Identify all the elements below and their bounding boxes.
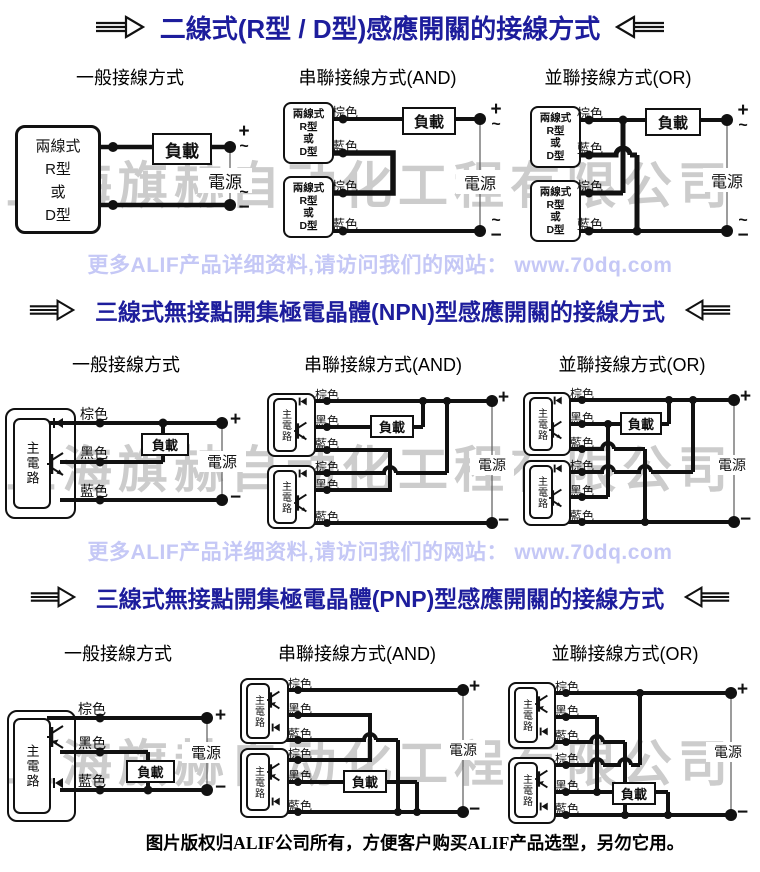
double-arrow-right-icon [23,298,81,322]
wire-label-blue: 藍色 [288,797,312,814]
minus-symbol: − [469,802,480,818]
section1-title: 二線式(R型 / D型)感應開關的接線方式 [160,9,601,46]
wire-label-brown: 棕色 [288,675,312,692]
sensor-box-line: D型 [532,150,579,163]
wire-label-blue: 藍色 [80,481,108,501]
wire-label-blue: 藍色 [555,800,579,817]
wire-label-blue: 藍色 [288,725,312,742]
load-box: 負載 [141,433,189,456]
terminal-minus: − [737,805,748,821]
wire-label-brown: 棕色 [570,457,594,474]
terminal-plus-ac: + ~ [234,124,254,154]
diode-icon [551,395,563,406]
sensor-box-line: D型 [532,224,579,237]
wire-label-blue: 藍色 [570,434,594,451]
terminal-plus-ac: + ~ [733,103,753,133]
terminal-minus: − [215,780,226,796]
sensor-box-line: 或 [285,207,332,220]
wire-label-black: 黑色 [288,700,312,717]
minus-symbol: − [486,228,506,244]
sensor-box: 兩線式 R型 或 D型 [530,180,581,242]
double-arrow-left-icon [678,585,736,609]
minus-symbol: − [737,805,748,821]
wire-label-blue: 藍色 [332,136,358,155]
wire-label-blue: 藍色 [315,435,339,452]
wire-label-blue: 藍色 [555,727,579,744]
load-box: 負載 [343,770,387,793]
wire-label-brown: 棕色 [332,102,358,121]
section2-title: 三線式無接點開集極電晶體(NPN)型感應開關的接線方式 [95,293,665,327]
wire-label-black: 黑色 [315,476,339,493]
section1-title-row: 二線式(R型 / D型)感應開關的接線方式 [0,8,760,46]
sensor-box-line: 或 [18,181,98,204]
pnp-transistor-icon [535,694,549,714]
wire-label-black: 黑色 [555,702,579,719]
load-box: 負載 [612,782,656,805]
s2-header-parallel: 並聯接線方式(OR) [542,351,722,377]
sensor-box-line: 或 [532,137,579,150]
wire-label-black: 黑色 [570,409,594,426]
wire-label-brown: 棕色 [288,745,312,762]
plus-symbol: + [737,682,748,698]
sensor-box-line: 兩線式 [285,108,332,121]
wire-label-blue: 藍色 [577,214,603,233]
load-box: 負載 [620,412,662,435]
plus-symbol: + [215,708,226,724]
main-circuit-label: 主電路 [278,409,293,442]
main-circuit-box: 主電路 [13,718,51,814]
diode-icon [296,468,308,479]
wire-label-black: 黑色 [315,412,339,429]
sensor-box: 兩線式 R型 或 D型 [283,102,334,164]
wire-label-blue: 藍色 [570,507,594,524]
wire-label-brown: 棕色 [577,176,603,195]
main-circuit-label: 主電路 [251,766,266,799]
minus-symbol: − [740,512,751,528]
pnp-transistor-icon [267,690,281,710]
section2-title-row: 三線式無接點開集極電晶體(NPN)型感應開關的接線方式 [0,292,760,328]
diagram-2wire-general: 兩線式 R型 或 D型 負載 電源 + ~ ~ − [0,96,260,250]
wire-label-blue: 藍色 [315,508,339,525]
terminal-minus: − [740,512,751,528]
power-label: 電源 [198,451,246,472]
diagram-2wire-series: 兩線式 R型 或 D型 兩線式 R型 或 D型 棕色 藍色 棕色 藍色 負載 電… [258,96,510,250]
terminal-plus: + [230,412,241,428]
terminal-minus-ac: ~ − [234,186,254,216]
power-label: 電源 [710,455,754,475]
wire-label-brown: 棕色 [332,176,358,195]
s2-header-general: 一般接線方式 [46,351,206,377]
double-arrow-left-icon [614,14,666,40]
s1-header-general: 一般接線方式 [50,64,210,90]
sensor-box-line: R型 [18,158,98,181]
wiring-diagram-sheet: 上海旗赫自动化工程有限公司 上海旗赫自动化工程有限公司 上海旗赫自动化工程有限公… [0,0,760,872]
copyright-line: 图片版权归ALIF公司所有，方便客户购买ALIF产品选型，另勿它用。 [70,830,760,855]
main-circuit-label: 主電路 [534,476,549,509]
promo-banner: 更多ALIF产品详细资料,请访问我们的网站： www.70dq.com [0,249,760,279]
main-circuit-label: 主電路 [519,774,534,807]
diagram-pnp-general: 主電路 棕色 黑色 藍色 負載 電源 + − [0,668,260,830]
terminal-plus: + [740,389,751,405]
sensor-box-line: 兩線式 [532,112,579,125]
wire-label-brown: 棕色 [555,750,579,767]
main-circuit-label: 主電路 [251,695,266,728]
sensor-box-line: R型 [285,121,332,134]
load-box: 負載 [126,760,175,783]
sensor-box-line: 或 [532,211,579,224]
sensor-box-line: 兩線式 [285,182,332,195]
terminal-minus-ac: ~ − [486,214,506,244]
diagram-pnp-parallel: 主電路 主電路 棕色 黑色 藍色 棕色 黑色 藍色 負載 電源 + − [500,668,760,836]
diode-icon [551,463,563,474]
wire-label-black: 黑色 [288,767,312,784]
ac-symbol: ~ [234,140,254,154]
wire-label-brown: 棕色 [570,385,594,402]
wire-label-black: 黑色 [78,733,106,753]
section3-title: 三線式無接點開集極電晶體(PNP)型感應開關的接線方式 [96,580,665,614]
wire-label-brown: 棕色 [555,678,579,695]
wire-label-blue: 藍色 [332,214,358,233]
plus-symbol: + [230,412,241,428]
s3-header-parallel: 並聯接線方式(OR) [535,640,715,666]
s2-header-series: 串聯接線方式(AND) [288,351,478,377]
sensor-box: 兩線式 R型 或 D型 [15,125,101,234]
promo-banner: 更多ALIF产品详细资料,请访问我们的网站： www.70dq.com [0,536,760,566]
diode-icon [269,796,281,807]
main-circuit-label: 主電路 [23,744,42,789]
diagram-pnp-series: 主電路 主電路 棕色 黑色 藍色 棕色 黑色 藍色 負載 電源 + − [230,668,492,843]
s1-header-series: 串聯接線方式(AND) [285,64,470,90]
npn-transistor-icon [549,420,563,440]
power-label: 電源 [456,170,504,194]
minus-symbol: − [733,228,753,244]
terminal-plus-ac: + ~ [486,102,506,132]
sensor-box: 兩線式 R型 或 D型 [283,176,334,238]
diagram-npn-general: 主電路 棕色 黑色 藍色 負載 電源 + − [0,385,260,535]
terminal-minus: − [230,490,241,506]
pnp-transistor-icon [47,724,65,750]
wire-label-brown: 棕色 [315,386,339,403]
s3-header-series: 串聯接線方式(AND) [262,640,452,666]
wire-label-blue: 藍色 [577,138,603,157]
diagram-npn-parallel: 主電路 主電路 棕色 黑色 藍色 棕色 黑色 藍色 負載 電源 + − [505,385,760,535]
sensor-box-line: 兩線式 [532,186,579,199]
power-label: 電源 [703,168,751,192]
sensor-box-line: D型 [285,220,332,233]
wire-label-black: 黑色 [555,777,579,794]
load-box: 負載 [402,107,456,135]
npn-transistor-icon [47,451,65,477]
wire-label-blue: 藍色 [78,771,106,791]
load-box: 負載 [645,108,701,136]
terminal-plus: + [215,708,226,724]
terminal-plus: + [737,682,748,698]
sensor-box: 兩線式 R型 或 D型 [530,106,581,168]
wire-label-black: 黑色 [80,443,108,463]
npn-transistor-icon [294,421,308,441]
minus-symbol: − [230,490,241,506]
power-label: 電源 [182,742,230,763]
terminal-minus-ac: ~ − [733,214,753,244]
main-circuit-box: 主電路 [13,418,51,509]
diode-icon [537,726,549,737]
diode-icon [269,722,281,733]
npn-transistor-icon [294,493,308,513]
ac-symbol: ~ [486,118,506,132]
diagram-npn-series: 主電路 主電路 棕色 黑色 藍色 棕色 黑色 藍色 負載 電源 + − [258,385,514,535]
wire-label-brown: 棕色 [315,458,339,475]
double-arrow-right-icon [94,14,146,40]
npn-transistor-icon [549,488,563,508]
diode-icon [296,396,308,407]
power-label: 電源 [706,742,750,762]
plus-symbol: + [469,679,480,695]
ac-symbol: ~ [733,119,753,133]
main-circuit-label: 主電路 [519,699,534,732]
diode-icon [537,801,549,812]
plus-symbol: + [740,389,751,405]
main-circuit-label: 主電路 [278,481,293,514]
sensor-box-line: 兩線式 [18,135,98,158]
minus-symbol: − [215,780,226,796]
diagram-2wire-parallel: 兩線式 R型 或 D型 兩線式 R型 或 D型 棕色 藍色 棕色 藍色 負載 電… [505,96,760,250]
terminal-minus: − [469,802,480,818]
sensor-box-line: R型 [532,199,579,212]
main-circuit-label: 主電路 [534,408,549,441]
s3-header-general: 一般接線方式 [38,640,198,666]
pnp-transistor-icon [535,769,549,789]
minus-symbol: − [234,200,254,216]
main-circuit-label: 主電路 [23,441,42,486]
diode-icon [49,416,65,430]
sensor-box-line: 或 [285,133,332,146]
power-label: 電源 [441,740,485,760]
sensor-box-line: R型 [532,125,579,138]
load-box: 負載 [370,415,414,438]
wire-label-brown: 棕色 [577,103,603,122]
double-arrow-left-icon [679,298,737,322]
pnp-transistor-icon [267,762,281,782]
load-box: 負載 [152,133,212,165]
section3-title-row: 三線式無接點開集極電晶體(PNP)型感應開關的接線方式 [0,579,760,615]
sensor-box-line: D型 [18,204,98,227]
double-arrow-right-icon [24,585,82,609]
diode-icon [49,776,65,790]
wire-label-black: 黑色 [570,482,594,499]
wire-label-brown: 棕色 [80,404,108,424]
s1-header-parallel: 並聯接線方式(OR) [528,64,708,90]
sensor-box-line: R型 [285,195,332,208]
sensor-box-line: D型 [285,146,332,159]
terminal-plus: + [469,679,480,695]
wire-label-brown: 棕色 [78,699,106,719]
